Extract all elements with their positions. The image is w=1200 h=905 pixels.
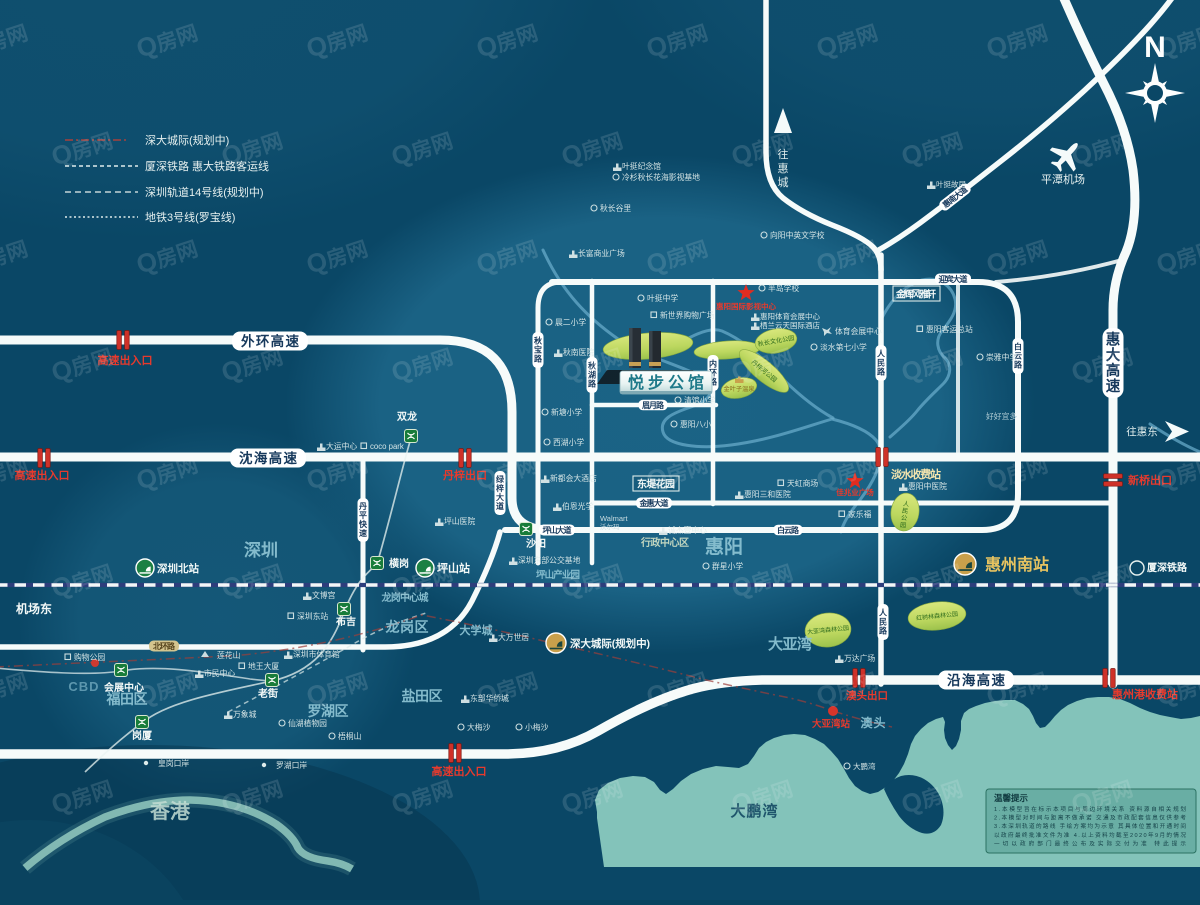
svg-text:快: 快 [359, 519, 368, 529]
svg-text:深圳: 深圳 [244, 540, 278, 560]
svg-text:白云路: 白云路 [777, 525, 800, 535]
svg-text:万象城: 万象城 [233, 709, 257, 719]
svg-text:淡水第七小学: 淡水第七小学 [820, 342, 867, 352]
svg-text:莲花山: 莲花山 [217, 650, 240, 660]
svg-text:大亚湾站: 大亚湾站 [812, 718, 851, 730]
svg-text:一切以政府部门最终公布及实际交付为准 特此提示: 一切以政府部门最终公布及实际交付为准 特此提示 [994, 839, 1186, 847]
svg-text:淡水收费站: 淡水收费站 [891, 467, 941, 481]
svg-text:大运中心: 大运中心 [326, 441, 357, 451]
svg-text:天虹商场: 天虹商场 [787, 478, 818, 488]
svg-text:路: 路 [588, 379, 597, 389]
svg-text:丹: 丹 [358, 502, 367, 511]
svg-text:厦深铁路: 厦深铁路 [1147, 561, 1188, 574]
svg-text:城: 城 [778, 176, 789, 189]
svg-text:机场东: 机场东 [16, 601, 52, 616]
svg-text:叶挺故居: 叶挺故居 [936, 179, 966, 189]
svg-text:群星小学: 群星小学 [712, 561, 743, 571]
svg-text:新都会大酒店: 新都会大酒店 [550, 473, 597, 483]
svg-text:文博宫: 文博宫 [312, 590, 336, 600]
svg-text:体育会展中心: 体育会展中心 [835, 326, 882, 336]
svg-text:西湖小学: 西湖小学 [553, 437, 584, 447]
svg-text:梧桐山: 梧桐山 [338, 731, 361, 741]
svg-text:冷杉秋长花海影视基地: 冷杉秋长花海影视基地 [622, 172, 700, 182]
svg-text:市民中心: 市民中心 [204, 668, 235, 678]
svg-text:崇雅中学: 崇雅中学 [986, 352, 1017, 362]
svg-text:龙岗区: 龙岗区 [385, 619, 429, 635]
svg-text:大梅沙: 大梅沙 [467, 722, 491, 732]
svg-text:迎宾大道: 迎宾大道 [939, 274, 968, 284]
svg-text:路: 路 [877, 367, 886, 377]
svg-text:新塘小学: 新塘小学 [551, 407, 582, 417]
svg-text:惠州南站: 惠州南站 [985, 555, 1049, 574]
svg-text:眉月路: 眉月路 [642, 400, 665, 410]
svg-text:皇岗口岸: 皇岗口岸 [158, 758, 189, 768]
svg-text:香港: 香港 [150, 799, 191, 823]
svg-text:金惠大道: 金惠大道 [639, 498, 669, 508]
svg-text:新世界购物广场: 新世界购物广场 [660, 310, 715, 320]
svg-text:路: 路 [534, 354, 543, 364]
svg-text:秋长谷里: 秋长谷里 [600, 203, 631, 213]
svg-text:惠阳体育会展中心: 惠阳体育会展中心 [760, 311, 820, 321]
svg-text:布吉: 布吉 [336, 615, 356, 628]
svg-text:道: 道 [496, 501, 504, 511]
svg-text:平: 平 [359, 511, 367, 520]
svg-text:民: 民 [879, 618, 887, 627]
svg-text:地王大厦: 地王大厦 [248, 661, 279, 671]
svg-text:坪山大道: 坪山大道 [543, 525, 572, 535]
svg-text:惠阳: 惠阳 [705, 536, 743, 558]
svg-text:深圳东站: 深圳东站 [297, 611, 328, 621]
svg-text:大万世居: 大万世居 [498, 632, 529, 642]
svg-text:购物公园: 购物公园 [74, 652, 105, 662]
svg-text:深圳东部公交基地: 深圳东部公交基地 [518, 555, 581, 565]
svg-text:惠阳国际影视中心: 惠阳国际影视中心 [716, 301, 776, 311]
svg-text:大学城: 大学城 [460, 623, 493, 637]
svg-text:CBD: CBD [68, 679, 99, 694]
svg-text:深大城际(规划中): 深大城际(规划中) [570, 637, 650, 650]
svg-text:行政中心区: 行政中心区 [640, 536, 689, 549]
svg-text:好好宜多: 好好宜多 [986, 411, 1017, 421]
svg-text:澳头: 澳头 [861, 715, 886, 730]
svg-text:往惠东: 往惠东 [1126, 425, 1158, 438]
svg-text:大: 大 [496, 492, 504, 502]
svg-text:叶挺中学: 叶挺中学 [647, 293, 678, 303]
svg-text:金辉风雅轩: 金辉风雅轩 [895, 289, 936, 301]
svg-text:园: 园 [900, 522, 907, 530]
svg-text:地铁3号线(罗宝线): 地铁3号线(罗宝线) [145, 210, 235, 224]
svg-text:白: 白 [1014, 342, 1022, 352]
svg-text:内: 内 [709, 359, 717, 369]
svg-text:万达广场: 万达广场 [844, 653, 875, 663]
svg-text:佳兆业广场: 佳兆业广场 [836, 487, 874, 497]
svg-text:深圳北站: 深圳北站 [157, 562, 199, 575]
svg-text:叶挺纪念馆: 叶挺纪念馆 [622, 161, 661, 171]
svg-text:仙湖植物园: 仙湖植物园 [288, 718, 327, 728]
svg-text:清馆小学: 清馆小学 [684, 395, 715, 405]
svg-text:温馨提示: 温馨提示 [994, 793, 1029, 803]
svg-text:秋: 秋 [533, 336, 543, 346]
svg-text:人: 人 [877, 349, 886, 359]
svg-text:向阳中英文学校: 向阳中英文学校 [770, 230, 825, 240]
svg-text:路: 路 [879, 626, 888, 636]
svg-text:盐田区: 盐田区 [402, 688, 443, 704]
svg-text:以政府最终批准文件为准 4.以上资料均截至2020年9月的情: 以政府最终批准文件为准 4.以上资料均截至2020年9月的情况 [994, 831, 1186, 839]
svg-text:伯恩光学: 伯恩光学 [562, 501, 593, 511]
svg-text:惠: 惠 [1106, 330, 1121, 348]
svg-text:宝: 宝 [534, 345, 542, 355]
svg-text:家乐福: 家乐福 [848, 509, 872, 519]
svg-text:深大城际(规划中): 深大城际(规划中) [145, 133, 229, 147]
svg-text:长富商业广场: 长富商业广场 [578, 248, 625, 258]
svg-text:惠阳客运总站: 惠阳客运总站 [926, 324, 973, 334]
svg-text:双龙: 双龙 [397, 410, 417, 423]
svg-text:速: 速 [1106, 377, 1121, 395]
svg-text:沈海高速: 沈海高速 [239, 450, 298, 466]
svg-text:外环高速: 外环高速 [241, 333, 300, 349]
svg-text:沃尔玛: 沃尔玛 [600, 522, 620, 531]
svg-text:惠: 惠 [778, 161, 789, 175]
svg-text:惠阳中医院: 惠阳中医院 [908, 481, 947, 491]
svg-text:速: 速 [359, 528, 367, 538]
svg-text:大鹏湾: 大鹏湾 [853, 761, 876, 771]
svg-text:岗厦: 岗厦 [132, 729, 153, 742]
svg-text:Walmart: Walmart [600, 514, 629, 523]
svg-text:诚杰壹中心: 诚杰壹中心 [668, 525, 707, 535]
svg-text:3.本深圳轨道的路线 手绘方案均为示意 其具体位置和开通时间: 3.本深圳轨道的路线 手绘方案均为示意 其具体位置和开通时间 [994, 822, 1186, 830]
svg-text:北环路: 北环路 [153, 641, 176, 651]
svg-text:惠阳三和医院: 惠阳三和医院 [744, 489, 791, 499]
svg-text:深圳轨道14号线(规划中): 深圳轨道14号线(规划中) [145, 185, 264, 199]
svg-text:民: 民 [877, 359, 885, 368]
svg-text:人: 人 [879, 608, 888, 618]
svg-text:深圳市体育馆: 深圳市体育馆 [293, 649, 340, 659]
svg-text:罗湖口岸: 罗湖口岸 [276, 761, 307, 770]
svg-text:coco park: coco park [370, 442, 404, 451]
svg-text:小梅沙: 小梅沙 [525, 722, 549, 732]
svg-text:栖兰云天国际酒店: 栖兰云天国际酒店 [760, 320, 820, 330]
svg-text:横岗: 横岗 [389, 557, 409, 570]
svg-text:大亚湾: 大亚湾 [768, 635, 812, 653]
svg-text:惠阳八小: 惠阳八小 [680, 419, 711, 429]
svg-text:坪山医院: 坪山医院 [444, 516, 475, 526]
svg-text:平潭机场: 平潭机场 [1041, 172, 1085, 186]
svg-text:老街: 老街 [257, 687, 278, 700]
svg-text:晨二小学: 晨二小学 [555, 317, 586, 327]
svg-text:沙田: 沙田 [526, 538, 546, 550]
svg-text:高速出入口: 高速出入口 [432, 764, 487, 778]
svg-text:半岛学校: 半岛学校 [768, 283, 799, 293]
